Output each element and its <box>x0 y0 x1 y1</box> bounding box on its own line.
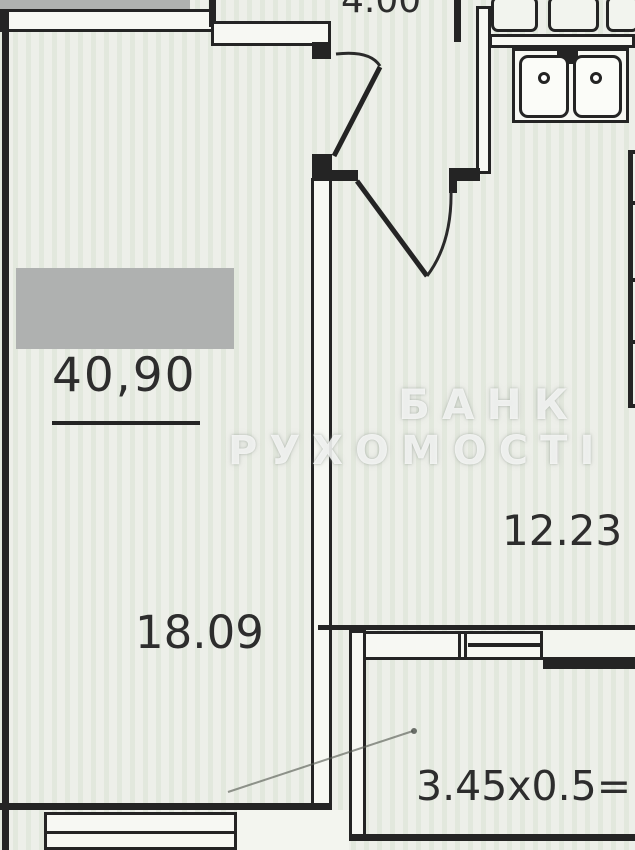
total-area-label: 40,90 <box>52 352 197 399</box>
cabinet-tick-5 <box>628 404 635 408</box>
wall-living-right <box>311 178 332 812</box>
watermark-line1: БАНК <box>300 384 580 426</box>
sink-drain-left-icon <box>538 72 550 84</box>
door-jamb-hall <box>312 154 332 181</box>
sink-drain-right-icon <box>590 72 602 84</box>
kitchen-cabinet-1 <box>491 0 538 32</box>
door-jamb-kitchen-stub <box>449 168 457 193</box>
wall-kitchen-left <box>476 6 491 174</box>
wall-bottom-corner <box>237 810 349 850</box>
wardrobe-divider-2 <box>464 632 467 659</box>
total-area-underline <box>52 421 200 425</box>
living-room-area-label: 18.09 <box>135 610 264 655</box>
wall-stub-top-right <box>454 0 461 42</box>
cabinet-tick-2 <box>628 201 635 205</box>
sink-basin-right-icon <box>573 55 622 118</box>
watermark-line2: РУХОМОСТІ <box>228 431 578 471</box>
wall-stub-hall <box>330 170 358 181</box>
wall-corridor-left <box>349 630 366 838</box>
kitchen-cabinet-3 <box>606 0 635 32</box>
wall-left-outer <box>2 9 9 850</box>
window-mullion-line <box>47 831 234 834</box>
wardrobe-divider-1 <box>458 632 461 659</box>
corridor-dimension-label: 3.45x0.5=1 <box>416 766 635 807</box>
wall-corridor-bottom-line <box>349 834 635 841</box>
wall-band-dark <box>543 657 635 669</box>
wall-top-left <box>0 9 214 32</box>
kitchen-cabinet-2 <box>548 0 599 32</box>
floor-plan-photo: БАНК РУХОМОСТІ 4.00 40,90 18.09 12.23 3.… <box>0 0 635 850</box>
cabinet-tick-4 <box>628 340 635 344</box>
kitchen-area-label: 12.23 <box>502 510 622 552</box>
cabinet-tick-1 <box>628 150 635 154</box>
redaction-box-room-name <box>16 268 234 349</box>
kitchen-counter-line <box>489 34 635 48</box>
wardrobe-rod <box>468 643 540 647</box>
sink-basin-left-icon <box>519 55 569 118</box>
wall-living-bottom-line <box>0 803 332 810</box>
top-dimension-label: 4.00 <box>341 0 421 19</box>
door-jamb-top <box>312 42 331 59</box>
cabinet-tick-3 <box>628 278 635 282</box>
wall-seg-right-of-wardrobe <box>543 630 635 659</box>
